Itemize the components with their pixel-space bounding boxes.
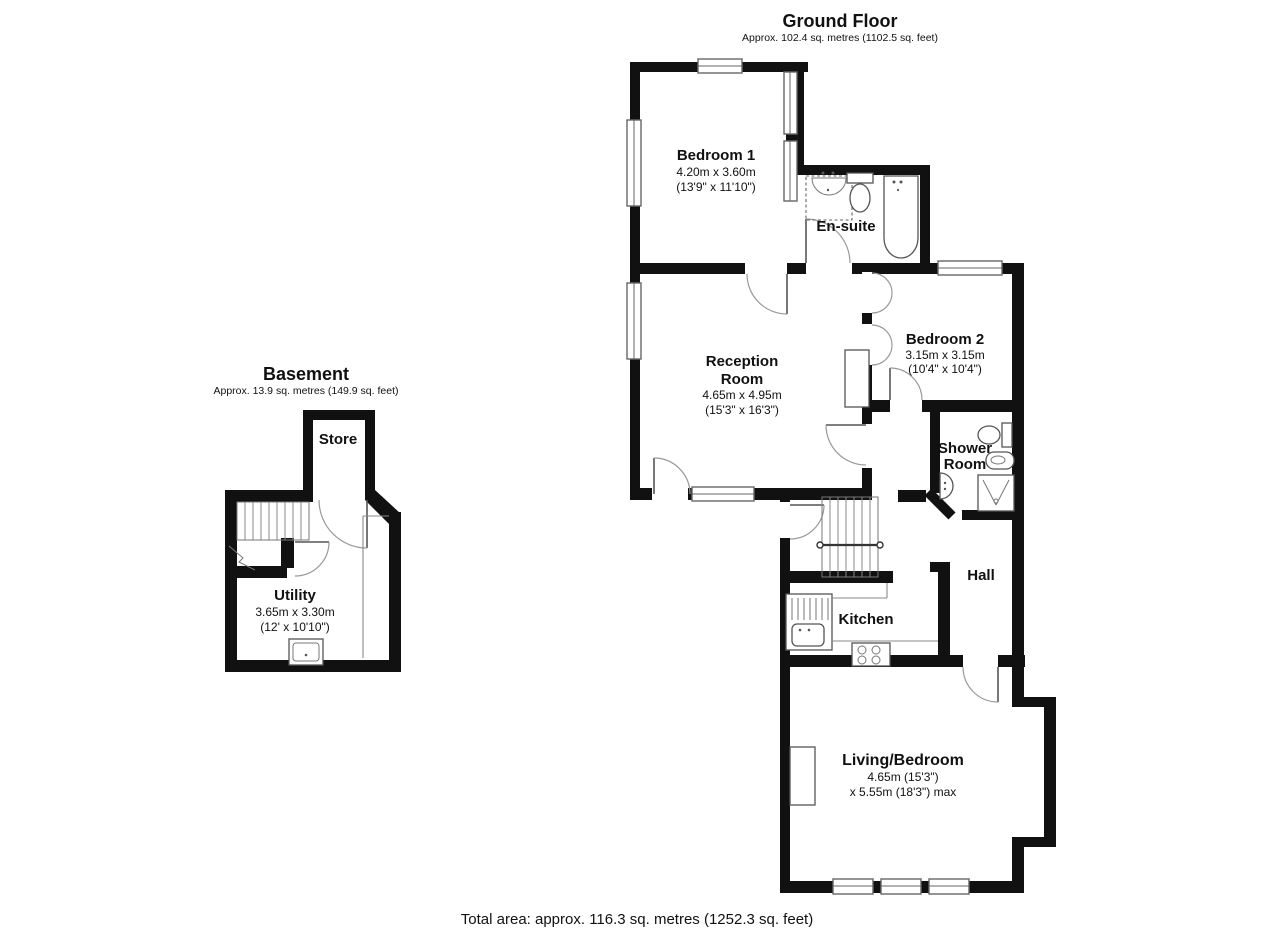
basement-title: Basement [263,364,349,384]
window [627,283,641,359]
closet-doors-bedroom2 [872,273,892,365]
window [929,879,969,894]
bedroom1-dims-ft: (13'9" x 11'10") [676,180,756,194]
window [938,261,1002,275]
chimney-recess [790,747,815,805]
store-label: Store [319,431,357,448]
bathtub-icon [884,176,918,258]
hall-label: Hall [967,567,995,584]
kitchen-label: Kitchen [838,611,893,628]
shower-tray-icon [978,475,1014,511]
utility-sink-icon [289,639,323,665]
fireplace [845,350,869,407]
utility-dims-m: 3.65m x 3.30m [255,605,334,619]
window [833,879,873,894]
window [784,72,797,134]
door-living [963,667,998,702]
kitchen-sink-icon [786,594,832,650]
window [881,879,921,894]
living-bedroom-dims-line1: 4.65m (15'3") [867,770,938,784]
bedroom2-label: Bedroom 2 [906,331,984,348]
ensuite-label: En-suite [816,218,875,235]
basement-staircase [229,502,309,570]
utility-dims-ft: (12' x 10'10") [260,620,330,634]
total-area-text: Total area: approx. 116.3 sq. metres (12… [461,911,813,928]
window [692,487,754,501]
basement-plan: Basement Approx. 13.9 sq. metres (149.9 … [213,364,401,672]
ensuite-toilet-icon [847,173,873,212]
floorplan-page: Ground Floor Approx. 102.4 sq. metres (1… [0,0,1280,931]
shower-room-label-line2: Room [944,456,987,473]
basement-subtitle: Approx. 13.9 sq. metres (149.9 sq. feet) [213,385,398,397]
wall-sink-icon [940,473,953,499]
living-bedroom-dims-line2: x 5.55m (18'3") max [850,785,957,799]
utility-label: Utility [274,587,316,604]
ensuite-sink-icon [806,172,852,221]
ground-floor-subtitle: Approx. 102.4 sq. metres (1102.5 sq. fee… [742,32,938,44]
ground-floor-plan: Ground Floor Approx. 102.4 sq. metres (1… [627,11,1056,894]
basement-closet-door [295,542,329,576]
window [627,120,641,206]
window [698,59,742,73]
bedroom1-dims-m: 4.20m x 3.60m [676,165,755,179]
reception-label-line2: Room [721,371,764,388]
bedroom2-dims-ft: (10'4" x 10'4") [908,362,982,376]
door-entrance [790,505,824,539]
shower-room-label-line1: Shower [938,440,992,457]
bedroom2-dims-m: 3.15m x 3.15m [905,348,984,362]
ground-floor-title: Ground Floor [783,11,898,31]
window [784,141,797,201]
reception-dims-m: 4.65m x 4.95m [702,388,781,402]
living-bedroom-label: Living/Bedroom [842,752,964,769]
door-reception-hall [826,425,866,465]
store-door [319,500,367,548]
reception-dims-ft: (15'3" x 16'3") [705,403,779,417]
bedroom1-label: Bedroom 1 [677,147,755,164]
reception-label-line1: Reception [706,353,779,370]
floorplan-canvas: Ground Floor Approx. 102.4 sq. metres (1… [0,0,1280,931]
hob-icon [852,643,890,666]
door-bedroom1 [747,274,787,314]
staircase [817,497,883,577]
